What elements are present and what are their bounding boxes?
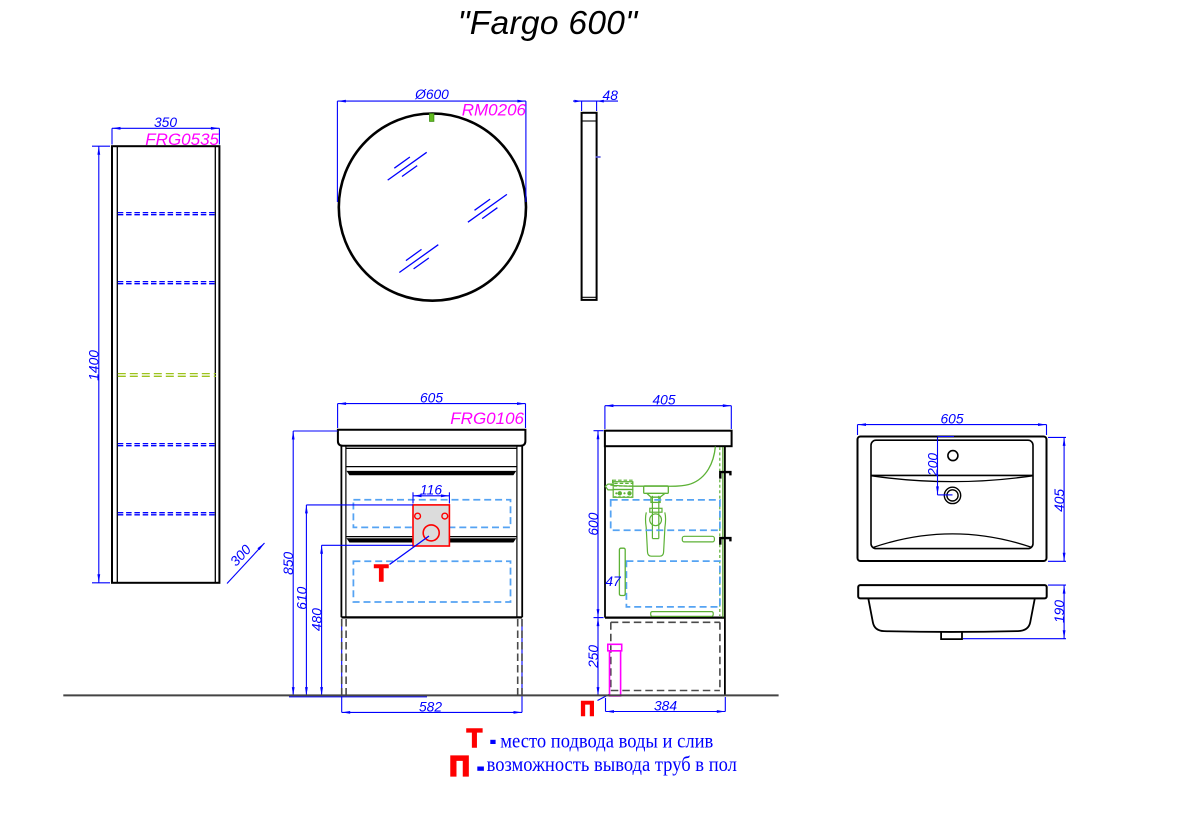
svg-text:405: 405 xyxy=(1052,489,1067,512)
svg-text:47: 47 xyxy=(605,574,622,589)
svg-text:610: 610 xyxy=(294,586,309,609)
svg-text:605: 605 xyxy=(940,412,963,427)
svg-text:405: 405 xyxy=(652,393,675,408)
svg-text:T: T xyxy=(374,560,388,586)
svg-text:600: 600 xyxy=(586,512,601,535)
svg-text:48: 48 xyxy=(603,88,619,103)
svg-text:250: 250 xyxy=(586,645,601,669)
svg-text:Ø600: Ø600 xyxy=(414,87,449,102)
svg-text:T: T xyxy=(467,725,483,753)
svg-text:200: 200 xyxy=(925,453,940,477)
svg-text:FRG0535: FRG0535 xyxy=(145,130,219,149)
svg-text:605: 605 xyxy=(420,391,443,406)
svg-text:RM0206: RM0206 xyxy=(462,101,527,120)
svg-text:480: 480 xyxy=(310,608,325,631)
svg-text:"Fargo 600": "Fargo 600" xyxy=(458,5,640,42)
svg-text:FRG0106: FRG0106 xyxy=(450,409,524,428)
svg-text:1400: 1400 xyxy=(87,350,102,381)
svg-text:384: 384 xyxy=(654,698,677,713)
svg-text:возможность вывода труб в пол: возможность вывода труб в пол xyxy=(487,752,737,776)
svg-text:582: 582 xyxy=(419,699,442,714)
svg-text:850: 850 xyxy=(281,551,296,574)
svg-text:116: 116 xyxy=(420,483,442,498)
svg-text:место подвода воды и слив: место подвода воды и слив xyxy=(500,729,713,753)
svg-text:П: П xyxy=(450,750,470,781)
svg-text:190: 190 xyxy=(1052,600,1067,623)
svg-text:350: 350 xyxy=(154,115,177,130)
svg-text:П: П xyxy=(580,698,594,720)
